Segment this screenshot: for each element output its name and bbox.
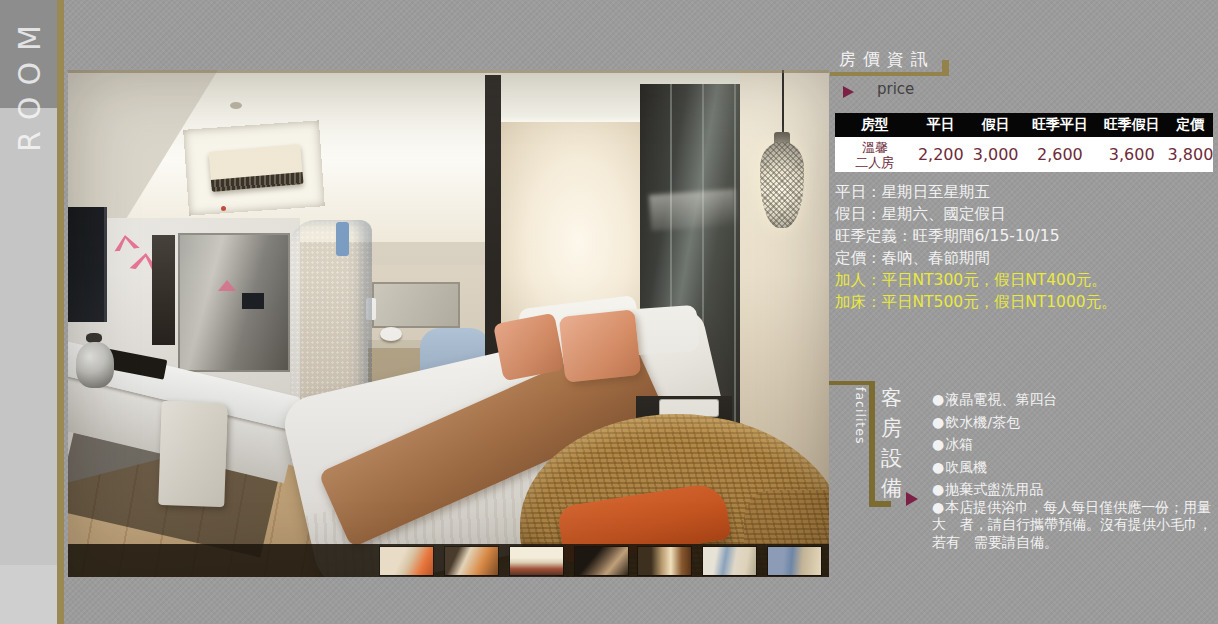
- photo-top-edge: [68, 70, 829, 73]
- mini-fridge: [158, 401, 228, 507]
- facilities-label-zh: 客房設備: [881, 383, 905, 503]
- facilities-bracket: [869, 381, 875, 507]
- electric-kettle: [76, 342, 114, 388]
- ceiling-downlight: [230, 102, 242, 109]
- bullet-icon: ●: [932, 481, 944, 497]
- gallery-thumbnail-7[interactable]: [768, 547, 821, 575]
- air-conditioner: [208, 144, 303, 192]
- note-extra-person: 加人：平日NT300元，假日NT400元。: [835, 269, 1215, 291]
- gallery-thumbnail-2[interactable]: [445, 547, 498, 575]
- bathroom-mirror: [372, 282, 460, 328]
- bullet-icon: ●: [932, 436, 944, 452]
- price-table-header: 房型 平日 假日 旺季平日 旺季假日 定價: [835, 113, 1213, 137]
- col-peak-weekday: 旺季平日: [1024, 116, 1096, 134]
- col-weekday: 平日: [914, 116, 967, 134]
- room-photo: [68, 70, 829, 577]
- col-holiday: 假日: [967, 116, 1024, 134]
- note-weekday: 平日：星期日至星期五: [835, 181, 1215, 203]
- price-arrow-icon: [843, 86, 854, 98]
- title-underline-stub: [942, 60, 949, 76]
- gallery-thumbnail-6[interactable]: [703, 547, 756, 575]
- room-door: [152, 235, 175, 345]
- note-list-price: 定價：春吶、春節期間: [835, 247, 1215, 269]
- facility-item-towel-note: ●本店提供浴巾，每人每日僅供應一份；用量大 者，請自行攜帶預備。沒有提供小毛巾，…: [932, 499, 1216, 552]
- blue-towel: [336, 222, 349, 256]
- salmon-pillow: [493, 313, 565, 382]
- bullet-icon: ●: [932, 459, 944, 475]
- wall-mirror: [178, 233, 290, 372]
- col-list-price: 定價: [1168, 116, 1213, 134]
- gallery-thumbnail-1[interactable]: [380, 547, 433, 575]
- room-info-page: { "sidebar": { "room_label": "ROOM" }, "…: [0, 0, 1218, 624]
- facility-item: ●吹風機: [932, 459, 1216, 477]
- facility-item: ●飲水機/茶包: [932, 414, 1216, 432]
- facility-item: ●冰箱: [932, 436, 1216, 454]
- gold-vertical-divider: [57, 0, 64, 624]
- facility-item: ●拋棄式盥洗用品: [932, 481, 1216, 499]
- weekday-price: 2,200: [914, 145, 967, 164]
- facility-item: ●液晶電視、第四台: [932, 391, 1216, 409]
- price-table-row: 溫馨 二人房 2,200 3,000 2,600 3,600 3,800: [835, 137, 1213, 172]
- note-extra-bed: 加床：平日NT500元，假日NT1000元。: [835, 291, 1215, 313]
- price-table: 房型 平日 假日 旺季平日 旺季假日 定價 溫馨 二人房 2,200 3,000…: [835, 113, 1213, 172]
- salmon-pillow: [559, 309, 641, 383]
- room-vertical-label: ROOM: [12, 14, 47, 152]
- bullet-icon: ●: [932, 391, 944, 407]
- title-underline: [830, 72, 949, 76]
- smoke-detector: [221, 206, 226, 211]
- price-section-title: 房價資訊: [839, 48, 935, 71]
- list-price: 3,800: [1168, 145, 1213, 164]
- gallery-thumbnail-4[interactable]: [575, 547, 628, 575]
- sidebar-bottom-block: [0, 565, 57, 624]
- peak-holiday-price: 3,600: [1096, 145, 1168, 164]
- col-peak-holiday: 旺季假日: [1096, 116, 1168, 134]
- note-holiday: 假日：星期六、國定假日: [835, 203, 1215, 225]
- facilities-list: ●液晶電視、第四台 ●飲水機/茶包 ●冰箱 ●吹風機 ●拋棄式盥洗用品 ●本店提…: [932, 391, 1216, 551]
- facilities-arrow-icon: [906, 492, 918, 506]
- facilities-label-en: facilites: [853, 387, 868, 444]
- wall-tv: [68, 207, 107, 322]
- col-room-type: 房型: [835, 116, 914, 134]
- mesh-pendant-lamp: [760, 142, 804, 228]
- peak-weekday-price: 2,600: [1024, 145, 1096, 164]
- room-type-cell: 溫馨 二人房: [835, 140, 914, 170]
- note-peak-season: 旺季定義：旺季期間6/15-10/15: [835, 225, 1215, 247]
- price-notes: 平日：星期日至星期五 假日：星期六、國定假日 旺季定義：旺季期間6/15-10/…: [835, 181, 1215, 313]
- bullet-icon: ●: [932, 499, 944, 515]
- holiday-price: 3,000: [967, 145, 1024, 164]
- bathroom-sink: [380, 327, 402, 341]
- gallery-thumbnail-5[interactable]: [638, 547, 691, 575]
- gallery-thumbnail-3[interactable]: [510, 547, 563, 575]
- bullet-icon: ●: [932, 414, 944, 430]
- price-subtitle: price: [877, 80, 914, 98]
